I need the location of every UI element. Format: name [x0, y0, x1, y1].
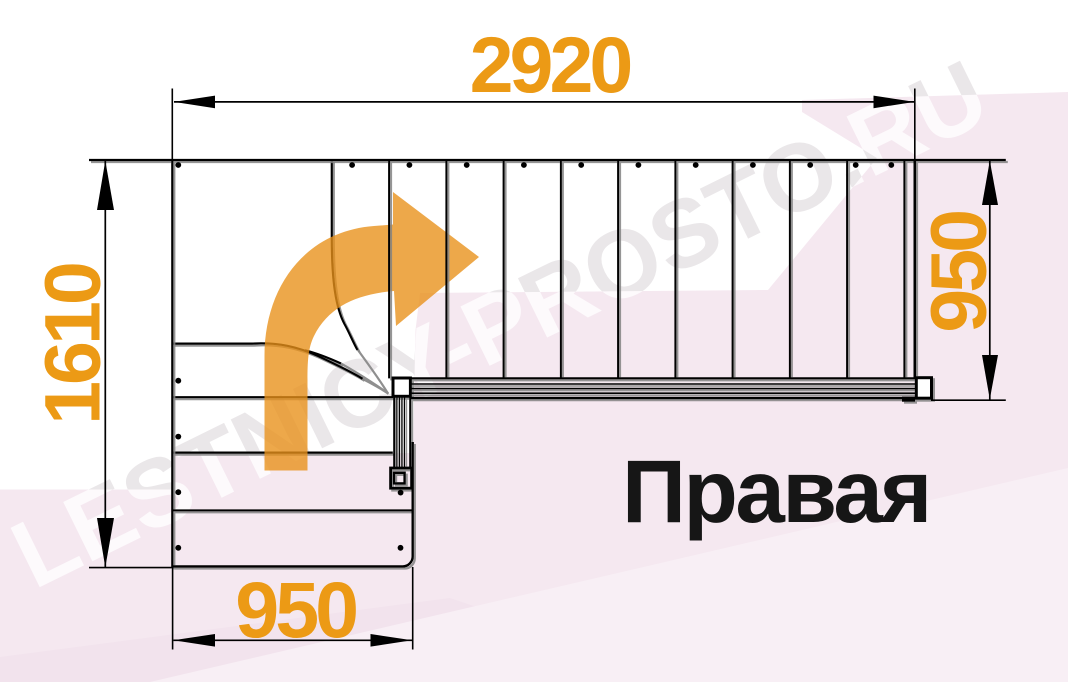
svg-text:950: 950: [914, 212, 1003, 333]
svg-text:Правая: Правая: [622, 441, 930, 541]
svg-text:1610: 1610: [27, 264, 116, 425]
svg-text:950: 950: [235, 565, 356, 654]
svg-text:2920: 2920: [470, 20, 631, 109]
